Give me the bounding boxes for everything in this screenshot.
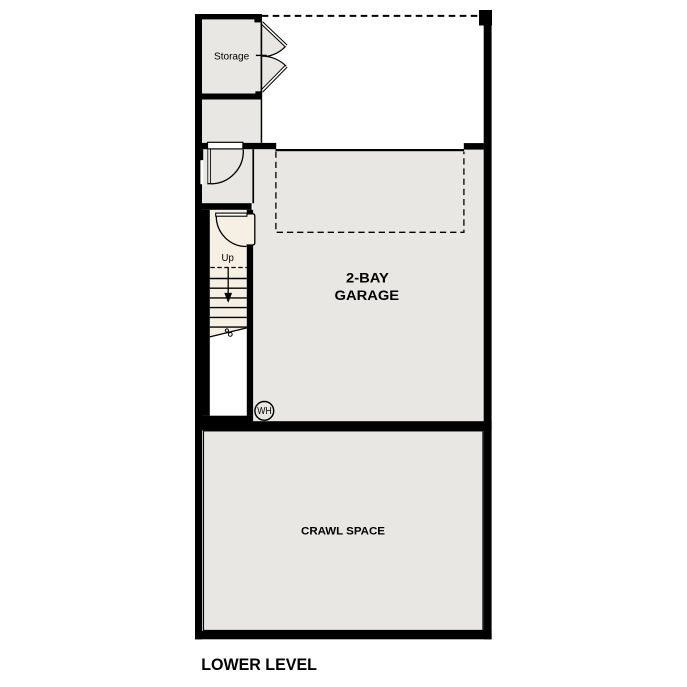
svg-text:CRAWL SPACE: CRAWL SPACE (301, 525, 385, 537)
svg-text:WH: WH (257, 406, 271, 417)
svg-text:2-BAY: 2-BAY (346, 269, 390, 285)
svg-text:GARAGE: GARAGE (335, 287, 400, 303)
svg-text:Up: Up (222, 253, 235, 264)
svg-text:Storage: Storage (214, 51, 250, 62)
svg-text:LOWER LEVEL: LOWER LEVEL (201, 656, 317, 674)
